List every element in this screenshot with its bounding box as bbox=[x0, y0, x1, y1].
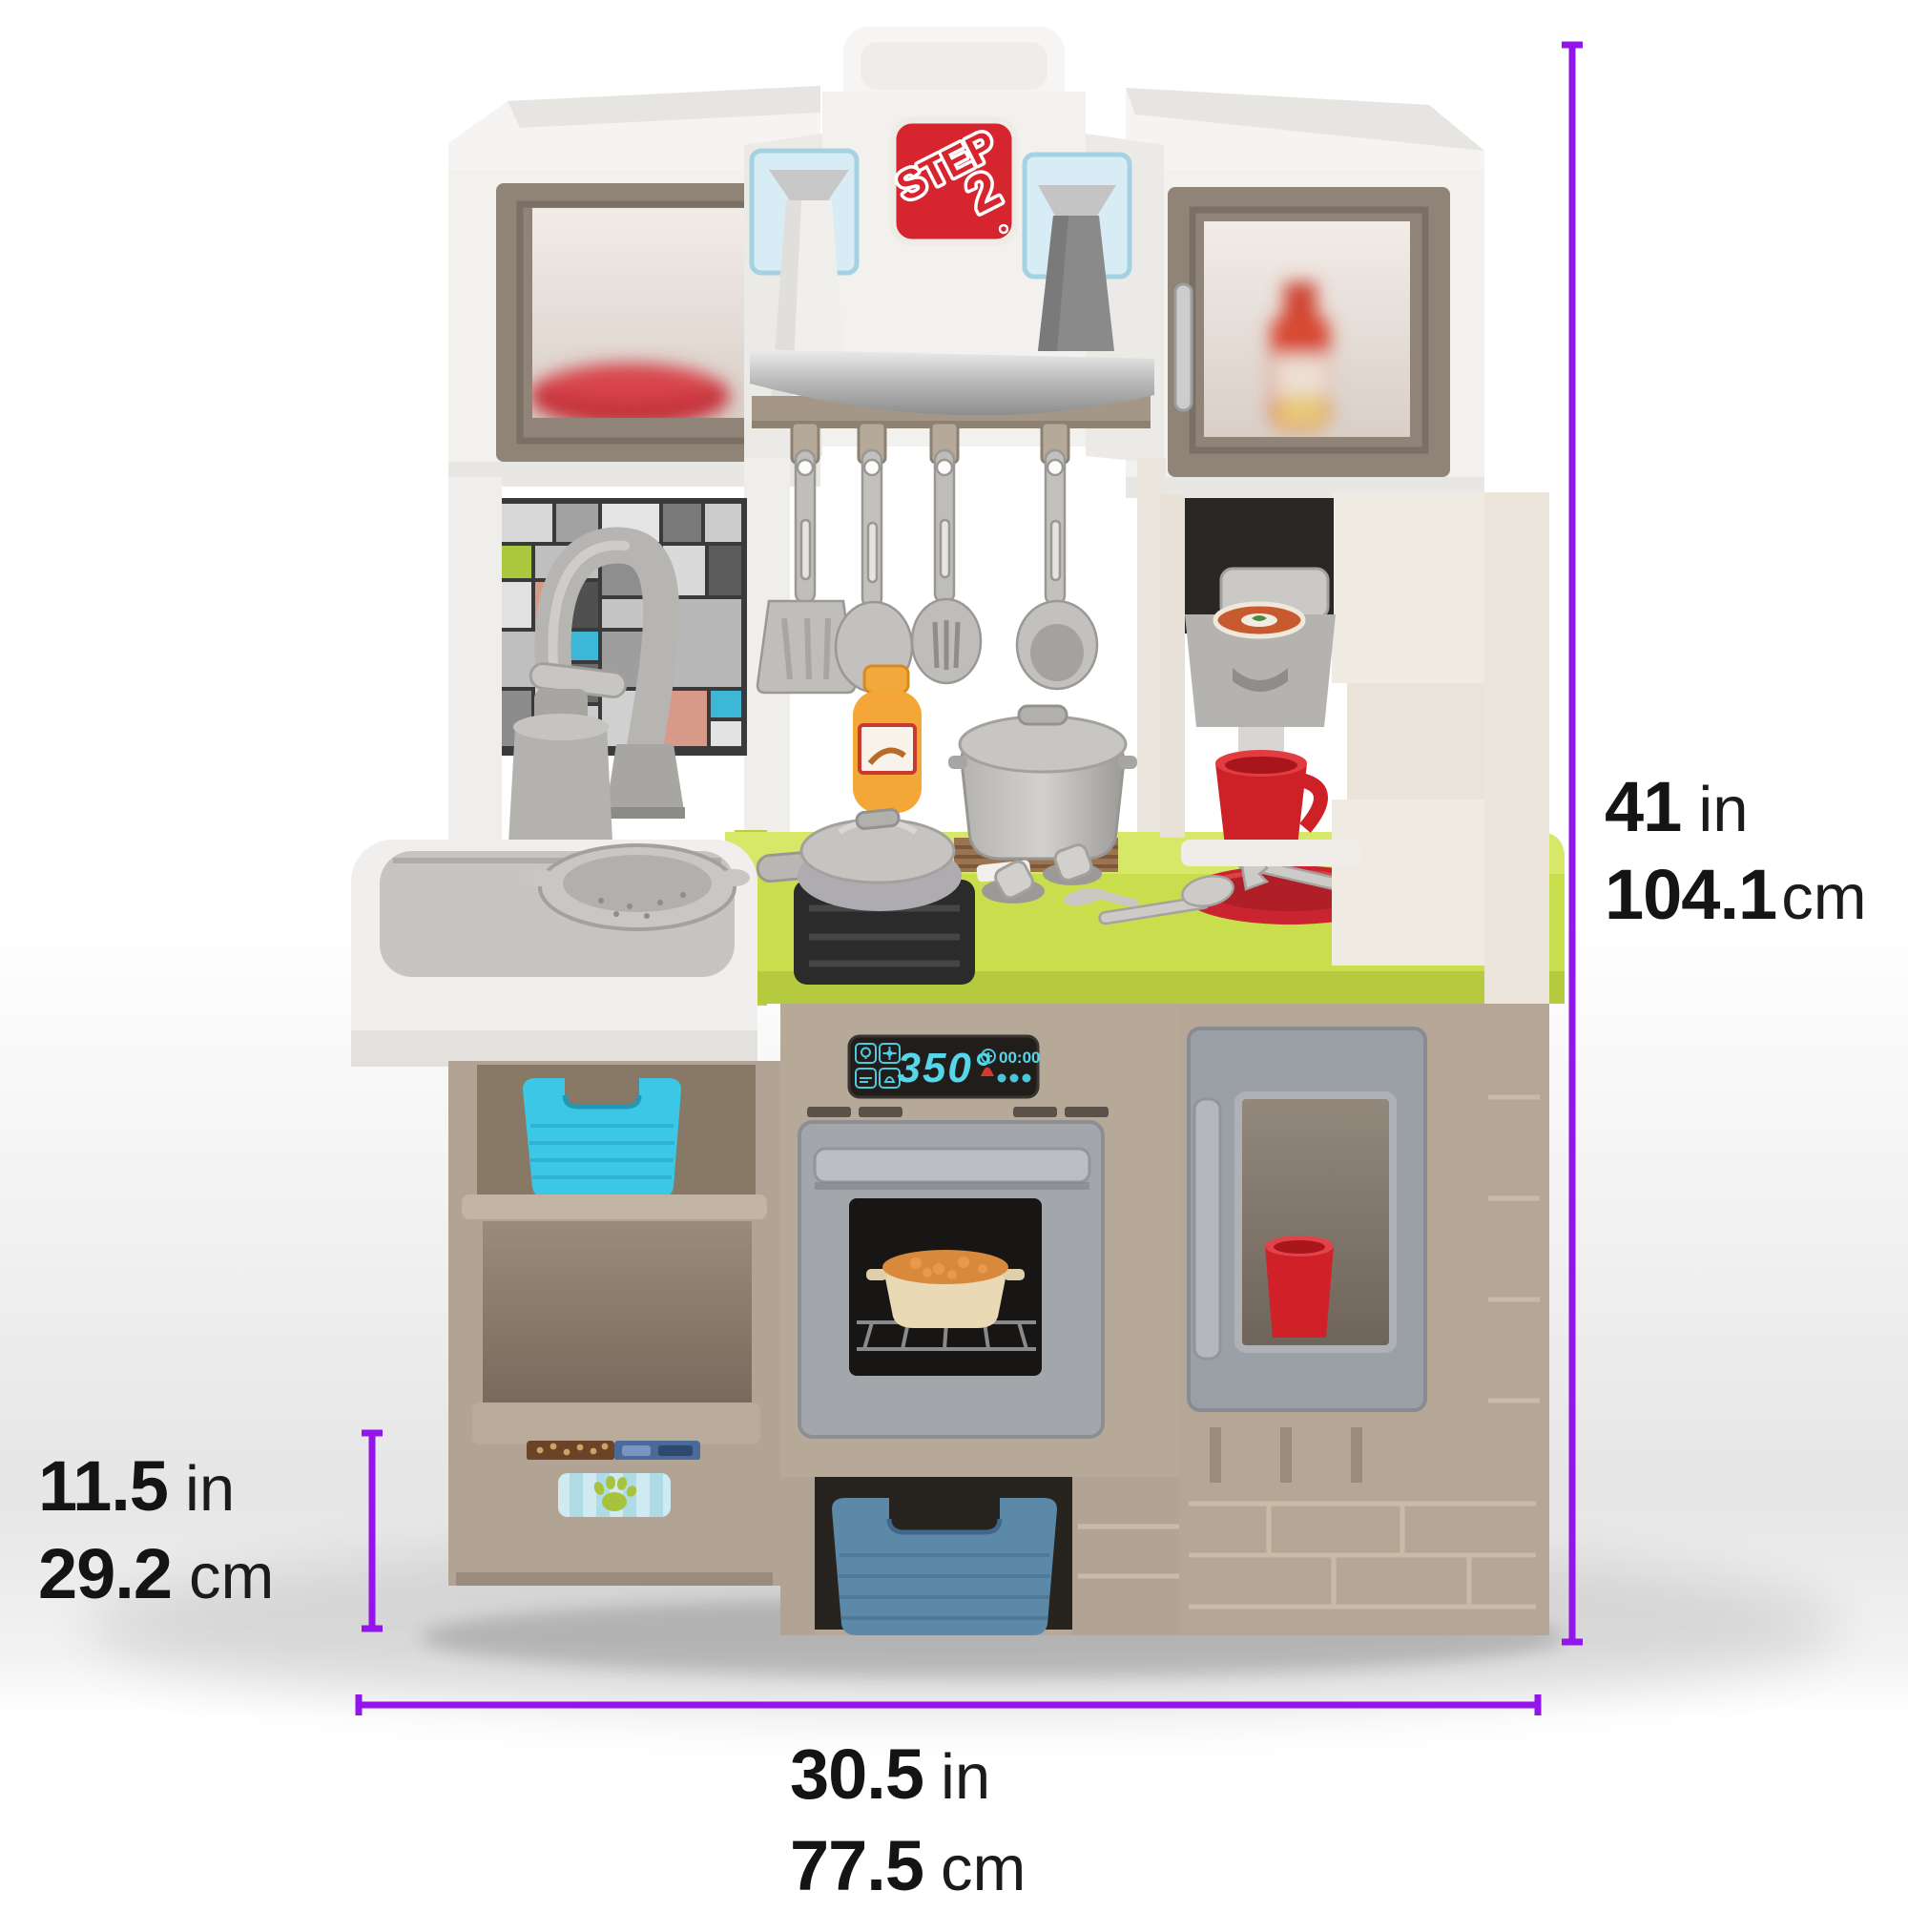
height-cm-unit: cm bbox=[1781, 862, 1866, 933]
shelf-inches-unit: in bbox=[185, 1453, 235, 1525]
width-cm-value: 77.5 bbox=[790, 1826, 923, 1905]
left-storage-tower bbox=[448, 1061, 782, 1586]
red-cup-in-fridge bbox=[1265, 1236, 1334, 1338]
width-inches-unit: in bbox=[941, 1741, 990, 1813]
fridge-door bbox=[1189, 1028, 1425, 1410]
pet-food-sticker bbox=[527, 1441, 700, 1461]
lower-shelf-opening bbox=[483, 1221, 752, 1404]
height-inches-value: 41 bbox=[1605, 767, 1681, 846]
width-dimension-label: 30.5in 77.5cm bbox=[790, 1729, 1026, 1912]
kitchen-playset-illustration: STEP 2 bbox=[0, 0, 1908, 1908]
refrigerator-module bbox=[1179, 1004, 1549, 1635]
width-inches-value: 30.5 bbox=[790, 1735, 923, 1814]
right-cabinet-handle bbox=[1175, 284, 1192, 410]
shelf-cm-value: 29.2 bbox=[38, 1534, 172, 1613]
height-inches-unit: in bbox=[1698, 774, 1748, 845]
width-cm-unit: cm bbox=[941, 1833, 1026, 1904]
shelf-cm-unit: cm bbox=[189, 1541, 274, 1612]
shelf-board bbox=[462, 1195, 767, 1219]
oven-module: 350° 00:00 bbox=[780, 1004, 1179, 1635]
oven-timer-readout: 00:00 bbox=[999, 1049, 1040, 1067]
shelf-height-dimension-label: 11.5in 29.2cm bbox=[38, 1443, 274, 1618]
shelf-inches-value: 11.5 bbox=[38, 1446, 168, 1526]
step2-logo: STEP 2 bbox=[889, 120, 1024, 251]
right-upper-cabinet bbox=[1126, 88, 1484, 498]
oven-handle bbox=[815, 1149, 1089, 1182]
product-photo: STEP 2 bbox=[0, 0, 1908, 1908]
paw-print-sticker bbox=[558, 1473, 671, 1517]
height-dimension-label: 41in 104.1cm bbox=[1605, 763, 1867, 939]
sink-unit bbox=[351, 840, 757, 1067]
height-cm-value: 104.1 bbox=[1605, 855, 1776, 934]
oven-temperature-readout: 350° bbox=[897, 1045, 991, 1091]
fridge-handle bbox=[1194, 1099, 1220, 1359]
stock-pot bbox=[948, 706, 1137, 859]
mug-platform bbox=[1181, 840, 1360, 866]
oven-display: 350° 00:00 bbox=[849, 1036, 1040, 1097]
oven-door bbox=[799, 1122, 1103, 1437]
faucet-spray-head bbox=[605, 744, 685, 817]
